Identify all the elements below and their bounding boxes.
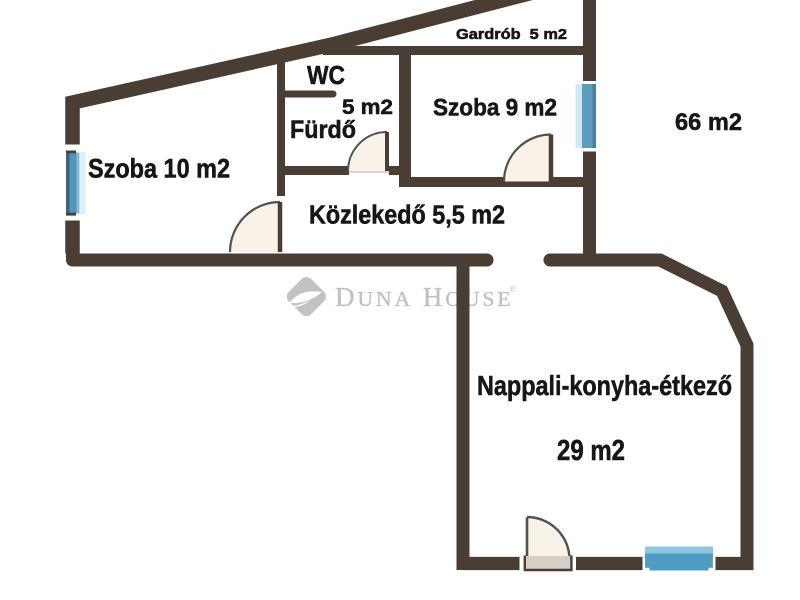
svg-text:WC: WC [307,60,345,90]
svg-text:Szoba 10 m2: Szoba 10 m2 [88,154,230,184]
svg-text:Közlekedő 5,5 m2: Közlekedő 5,5 m2 [309,202,505,230]
svg-text:Szoba 9 m2: Szoba 9 m2 [433,95,557,122]
svg-text:29 m2: 29 m2 [557,435,625,467]
svg-text:Nappali-konyha-étkező: Nappali-konyha-étkező [477,370,732,401]
svg-text:Fürdő: Fürdő [290,116,356,144]
svg-text:®: ® [509,284,516,294]
svg-text:DUNA HOUSE: DUNA HOUSE [335,282,514,312]
svg-text:66 m2: 66 m2 [675,109,742,136]
svg-text:Gardrób 5 m2: Gardrób 5 m2 [456,26,567,43]
